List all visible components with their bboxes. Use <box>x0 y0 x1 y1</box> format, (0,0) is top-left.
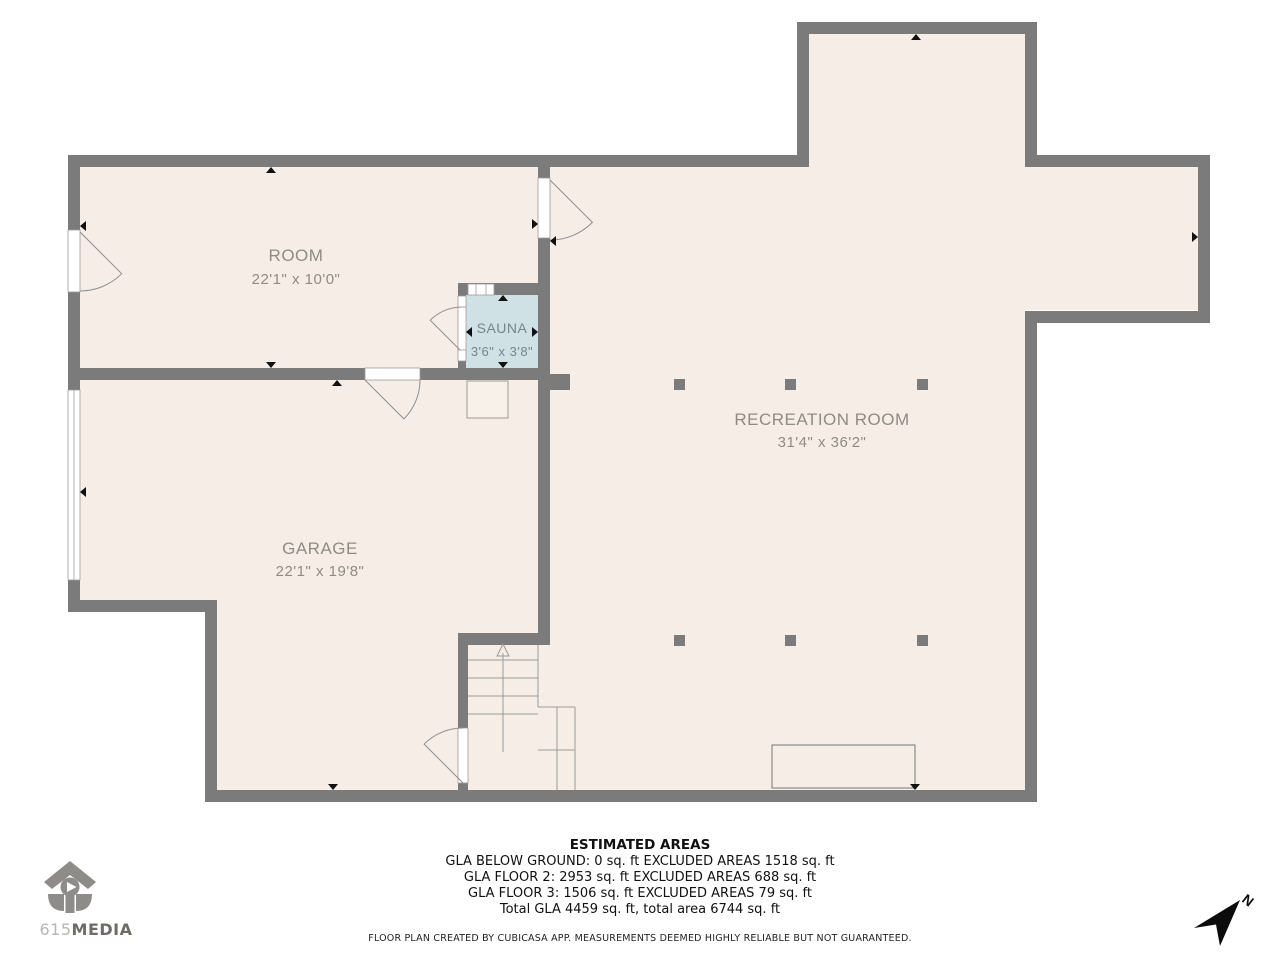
garage-label: GARAGE <box>220 539 420 559</box>
estimated-areas-title: ESTIMATED AREAS <box>0 837 1280 853</box>
brand-logo-icon <box>38 855 102 917</box>
logo-right-wing-icon <box>76 894 92 911</box>
sauna-heater <box>468 284 494 295</box>
sauna-dims: 3'6" x 3'8" <box>442 344 562 359</box>
column <box>917 635 928 646</box>
north-compass: N <box>1188 886 1258 952</box>
rec-room-door-leaf <box>538 178 550 238</box>
gla-line-floor-3: GLA FLOOR 3: 1506 sq. ft EXCLUDED AREAS … <box>0 886 1280 901</box>
column <box>785 635 796 646</box>
disclaimer-text: FLOOR PLAN CREATED BY CUBICASA APP. MEAS… <box>0 933 1280 944</box>
brand-prefix: 615 <box>39 920 71 939</box>
column <box>785 379 796 390</box>
sauna-label: SAUNA <box>442 320 562 336</box>
gla-line-total: Total GLA 4459 sq. ft, total area 6744 s… <box>0 902 1280 917</box>
stairs-door-leaf <box>458 728 468 783</box>
logo-left-wing-icon <box>48 894 64 911</box>
column <box>674 635 685 646</box>
water-heater <box>467 381 508 418</box>
gla-line-floor-2: GLA FLOOR 2: 2953 sq. ft EXCLUDED AREAS … <box>0 870 1280 885</box>
floor-plan-page: ROOM 22'1" x 10'0" SAUNA 3'6" x 3'8" GAR… <box>0 0 1280 960</box>
room-dims: 22'1" x 10'0" <box>196 271 396 288</box>
garage-door-leaf <box>365 368 420 380</box>
column <box>674 379 685 390</box>
room-entry-door-leaf <box>68 230 80 292</box>
recreation-room-dims: 31'4" x 36'2" <box>672 434 972 451</box>
column <box>917 379 928 390</box>
sauna-jamb-top <box>458 296 466 307</box>
brand-logo-text: 615MEDIA <box>26 920 146 939</box>
north-label: N <box>1239 891 1257 910</box>
gla-line-below-ground: GLA BELOW GROUND: 0 sq. ft EXCLUDED AREA… <box>0 854 1280 869</box>
floor-plan-canvas <box>0 0 1280 830</box>
logo-pillar-icon <box>66 894 75 913</box>
garage-dims: 22'1" x 19'8" <box>220 563 420 580</box>
recreation-room-label: RECREATION ROOM <box>672 410 972 430</box>
brand-suffix: MEDIA <box>72 920 133 939</box>
north-arrow-icon <box>1194 900 1240 946</box>
room-label: ROOM <box>196 246 396 266</box>
